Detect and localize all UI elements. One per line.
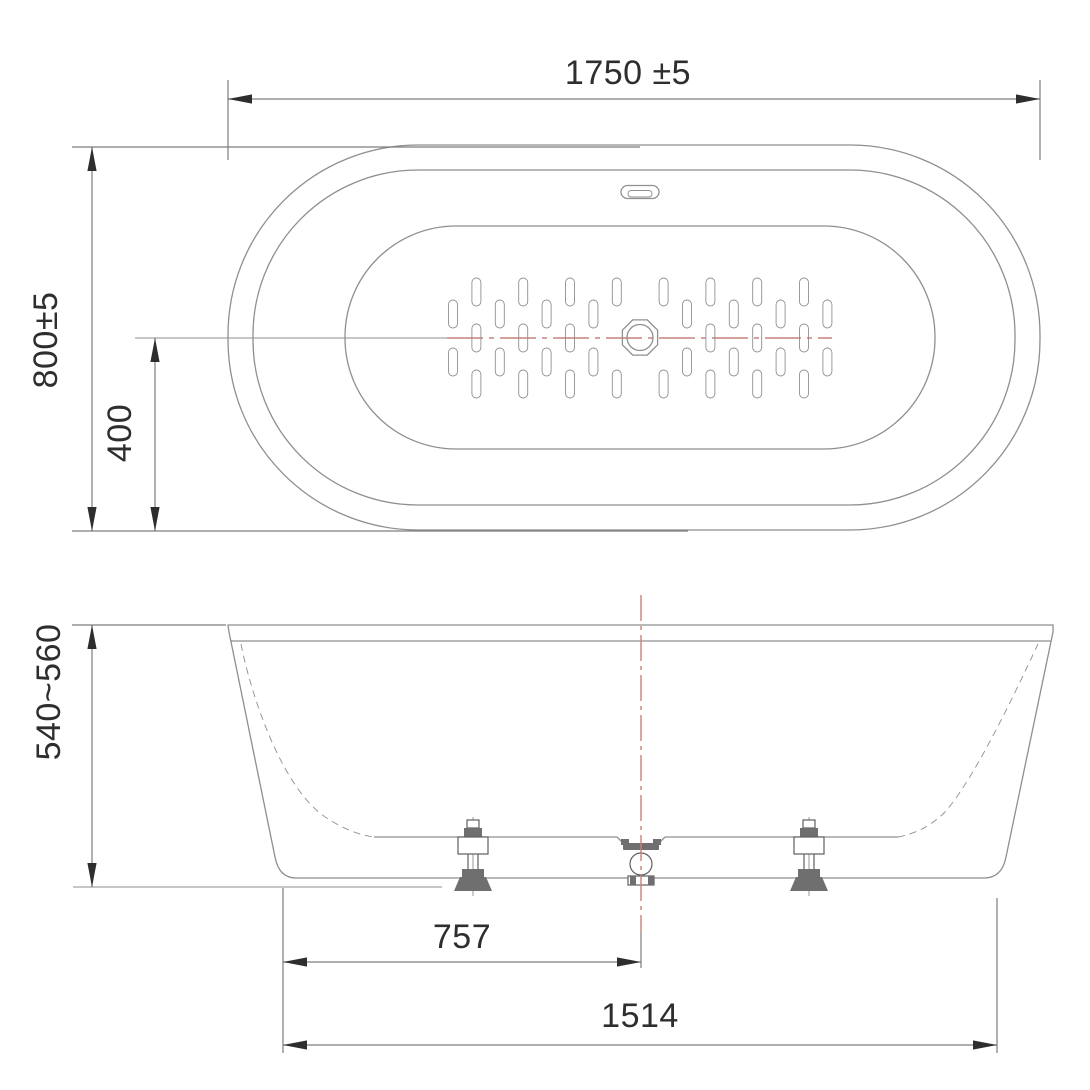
drain-slot xyxy=(495,300,504,328)
dimension-arrow xyxy=(228,94,252,103)
drain-slot xyxy=(776,300,785,328)
drain-slot xyxy=(495,348,504,376)
dim-plan-depth: 800±5 xyxy=(27,147,688,531)
basin-wall-left xyxy=(241,644,374,837)
dim-label-center-offset: 400 xyxy=(101,404,139,462)
drain-slot xyxy=(729,300,738,328)
dimension-arrow xyxy=(87,147,96,171)
dim-label-drain-offset: 757 xyxy=(433,918,491,956)
bathtub-technical-drawing: 1750 ±5 800±5 400 xyxy=(0,0,1090,1090)
drain-slot xyxy=(753,370,762,398)
drain-slot xyxy=(706,370,715,398)
drain-slot xyxy=(589,300,598,328)
drain-base-rib xyxy=(630,876,636,885)
drain-slot xyxy=(542,300,551,328)
drain-base-rib xyxy=(648,876,654,885)
dimension-arrow xyxy=(617,957,641,966)
dim-drain-offset: 757 xyxy=(283,918,641,968)
drain-slot xyxy=(612,278,621,306)
drain-slot xyxy=(589,348,598,376)
dim-label-plan-width: 1750 ±5 xyxy=(565,54,691,92)
drain-slot xyxy=(706,278,715,306)
dimension-arrow xyxy=(87,863,96,887)
drain-slot xyxy=(659,278,668,306)
foot-bolt xyxy=(467,820,479,828)
dimension-arrow xyxy=(973,1040,997,1049)
basin-wall-right xyxy=(898,644,1038,837)
dim-center-offset: 400 xyxy=(101,338,160,531)
overflow-outlet xyxy=(621,186,659,199)
drain-slot xyxy=(776,348,785,376)
leveling-foot-right xyxy=(790,817,828,896)
dim-plan-width: 1750 ±5 xyxy=(228,54,1040,160)
drain-slot xyxy=(683,300,692,328)
drain-slot xyxy=(449,348,458,376)
dimension-arrow xyxy=(87,625,96,649)
side-dimensions: 540~560 757 1514 xyxy=(30,624,997,1053)
drain-slot xyxy=(683,348,692,376)
dimension-arrow xyxy=(150,338,159,362)
overflow-inner xyxy=(628,191,652,198)
drain-slot xyxy=(729,348,738,376)
dim-label-base-width: 1514 xyxy=(601,997,679,1035)
drain-slot xyxy=(449,300,458,328)
dimension-arrow xyxy=(283,1040,307,1049)
drain-slot xyxy=(472,278,481,306)
drain-slot xyxy=(542,348,551,376)
drain-slot xyxy=(612,370,621,398)
dim-base-width: 1514 xyxy=(283,888,997,1053)
drain-slot xyxy=(753,278,762,306)
drain-slot xyxy=(566,278,575,306)
drain-slot xyxy=(566,370,575,398)
dimension-arrow xyxy=(283,957,307,966)
dim-label-plan-depth: 800±5 xyxy=(27,292,65,389)
side-view xyxy=(73,595,1053,932)
foot-nut xyxy=(462,869,484,877)
drain-slot xyxy=(800,370,809,398)
drain-slot xyxy=(800,278,809,306)
dimension-arrow xyxy=(1016,94,1040,103)
drain-slot xyxy=(519,278,528,306)
foot-bracket xyxy=(458,837,488,854)
dim-side-height: 540~560 xyxy=(30,624,226,887)
dimension-arrow xyxy=(150,507,159,531)
plan-dimensions: 1750 ±5 800±5 400 xyxy=(27,54,1040,531)
foot-bolt-cap xyxy=(464,828,482,837)
drain-slot xyxy=(823,300,832,328)
drain-slot xyxy=(659,370,668,398)
dimension-arrow xyxy=(87,507,96,531)
foot-pad xyxy=(454,877,492,891)
drain-slot xyxy=(823,348,832,376)
drain-slot xyxy=(472,370,481,398)
drain-slot xyxy=(519,370,528,398)
dim-label-side-height: 540~560 xyxy=(30,624,68,761)
drawing-canvas: 1750 ±5 800±5 400 xyxy=(0,0,1090,1090)
plan-view xyxy=(135,145,1040,530)
leveling-foot xyxy=(454,817,492,896)
